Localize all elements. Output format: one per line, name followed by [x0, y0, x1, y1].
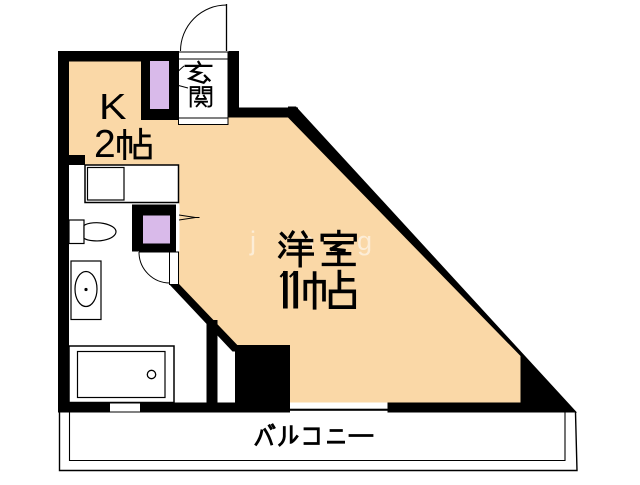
svg-text:2: 2 [94, 123, 116, 166]
svg-text:j: j [249, 226, 256, 256]
svg-text:K: K [99, 86, 127, 127]
svg-text:g: g [357, 226, 372, 256]
